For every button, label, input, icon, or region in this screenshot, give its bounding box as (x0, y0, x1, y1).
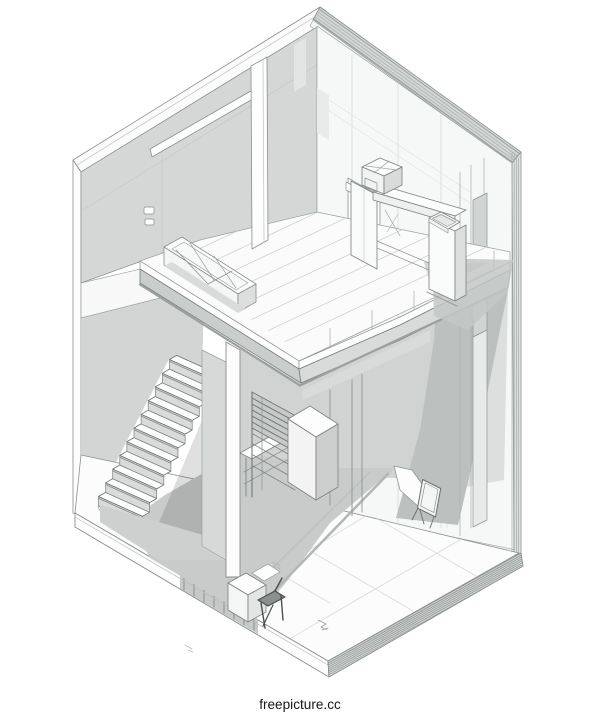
svg-text:freepicture.cc: freepicture.cc (259, 697, 341, 712)
